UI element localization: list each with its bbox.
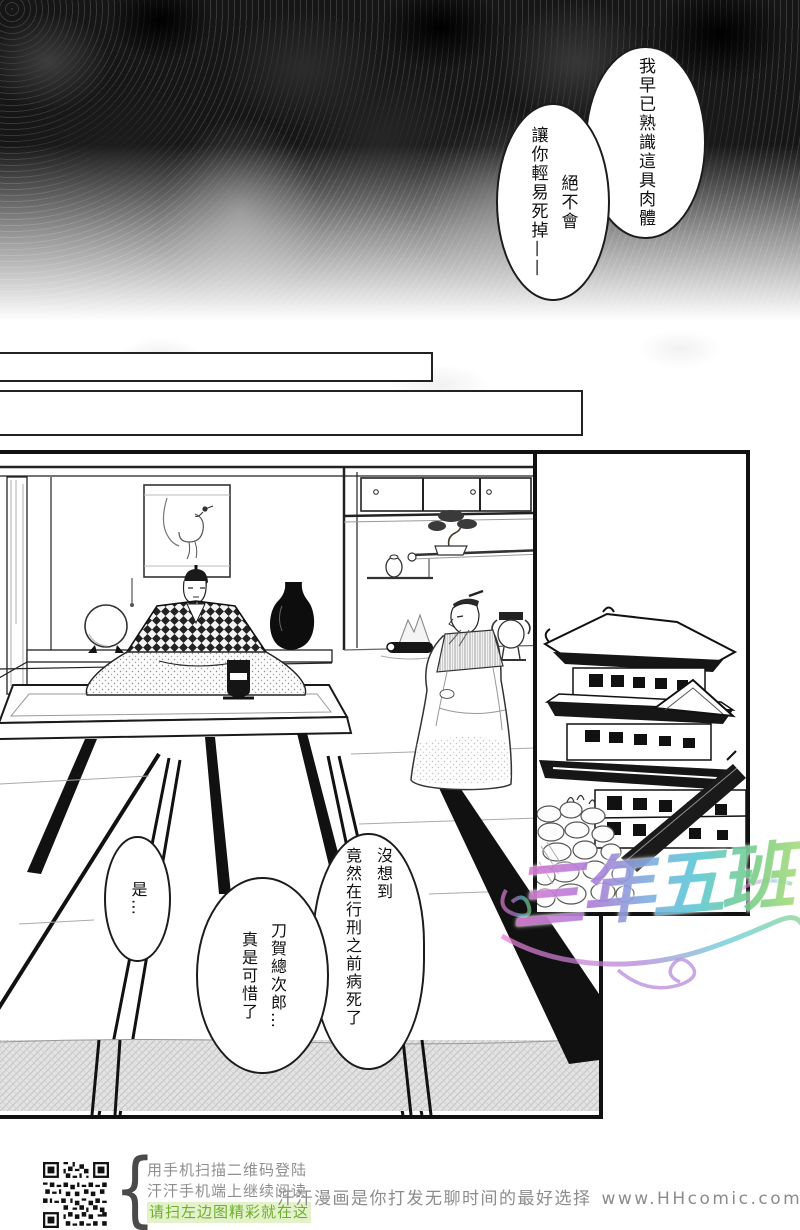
bubble-text-column: 是… (126, 838, 150, 960)
tagline-text: 汗汗漫画是你打发无聊时间的最好选择 (277, 1189, 592, 1209)
bubble-text-column: 沒想到 (371, 847, 397, 1068)
bubble-text-column: 我早已熟識這具肉體 (633, 48, 658, 237)
bubble-text-column: 真是可惜了 (236, 879, 260, 1072)
speech-bubble-pity: 刀賀總次郎… 真是可惜了 (196, 877, 329, 1074)
eave-beam-upper (0, 352, 433, 382)
vertical-text: 絕不會 讓你輕易死掉—— (526, 105, 581, 299)
qr-caption-line: 用手机扫描二维码登陆 (147, 1160, 311, 1181)
bubble-text-column: 竟然在行刑之前病死了 (340, 847, 366, 1068)
speech-bubble-not-die: 絕不會 讓你輕易死掉—— (496, 103, 610, 301)
qr-code (42, 1162, 110, 1228)
eave-beam-lower (0, 390, 583, 436)
vertical-text: 是… (126, 838, 150, 960)
speech-bubble-unexpected: 沒想到 竟然在行刑之前病死了 (312, 833, 425, 1070)
vertical-text: 沒想到 竟然在行刑之前病死了 (340, 835, 397, 1068)
site-url: www.HHcomic.com (602, 1189, 800, 1209)
manga-page: 我早已熟識這具肉體 絕不會 讓你輕易死掉—— (0, 0, 800, 1230)
vertical-text: 刀賀總次郎… 真是可惜了 (236, 879, 289, 1072)
bubble-text-column: 刀賀總次郎… (265, 879, 289, 1072)
castle-panel (533, 450, 750, 916)
bubble-text-column: 絕不會 (556, 105, 581, 299)
vertical-text: 我早已熟識這具肉體 (633, 48, 658, 237)
site-tagline: 汗汗漫画是你打发无聊时间的最好选择www.HHcomic.com (277, 1184, 800, 1209)
speech-bubble-yes: 是… (104, 836, 171, 962)
bubble-text-column: 讓你輕易死掉—— (526, 105, 551, 299)
armrest (223, 660, 254, 698)
footer: { 用手机扫描二维码登陆 汗汗手机端上继续阅读 请扫左边图精彩就在这 汗汗漫画是… (0, 1150, 800, 1230)
castle-scene (537, 454, 746, 912)
